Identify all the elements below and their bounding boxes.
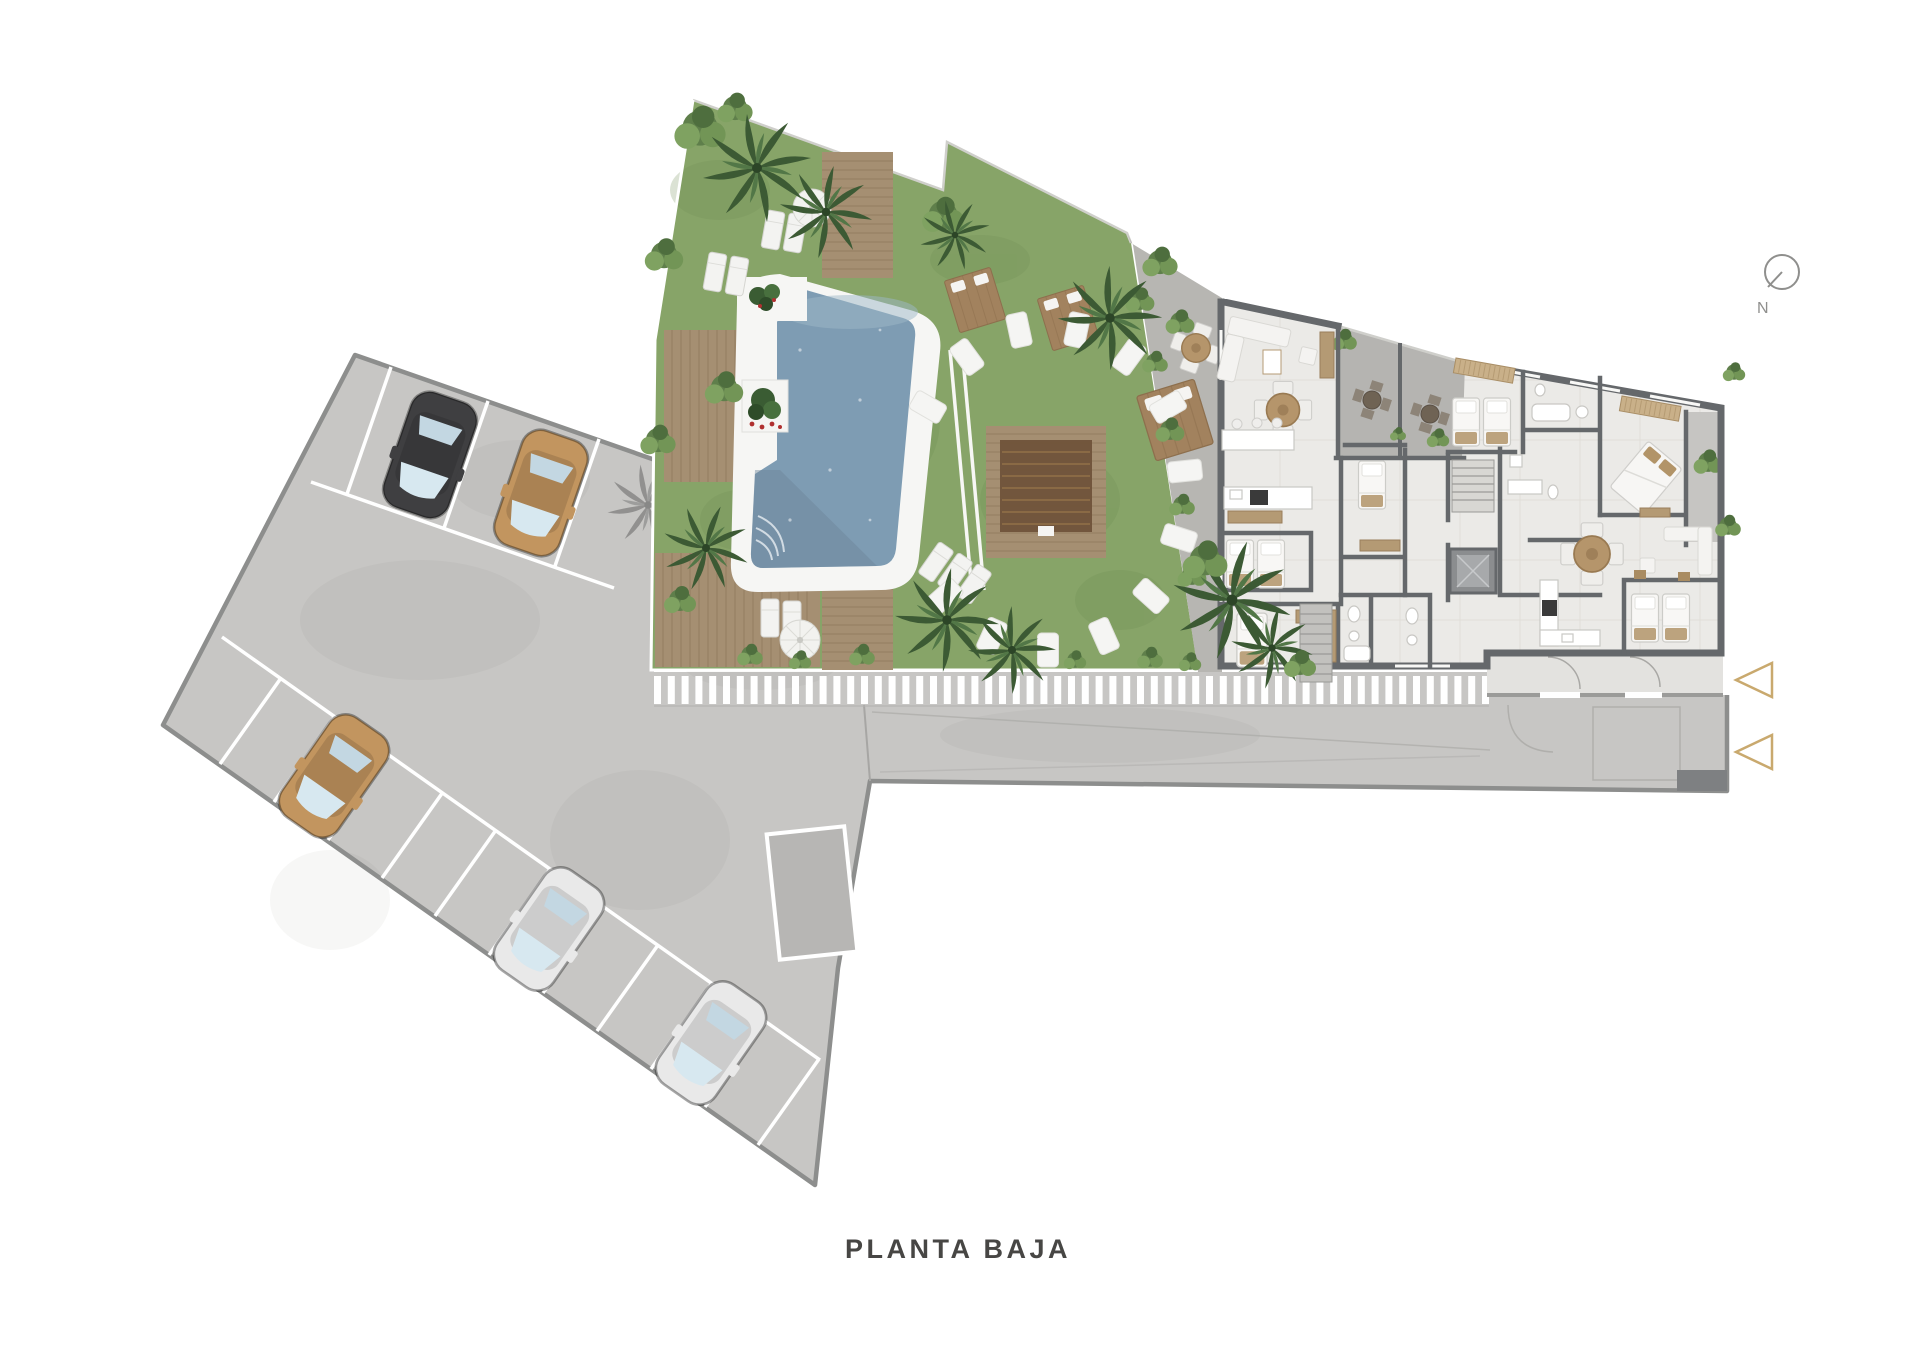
floor-plan-page: N PLANTA BAJA (0, 0, 1920, 1371)
toilet-4 (1548, 485, 1558, 499)
pool-planter (742, 380, 788, 432)
bed-6 (1484, 398, 1511, 446)
stove-right (1542, 600, 1557, 616)
pergola-roof (1000, 440, 1092, 532)
kitchen-sink (1230, 490, 1242, 499)
sink-3 (1576, 406, 1588, 418)
wardrobe-tall (1320, 332, 1334, 378)
bathtub-1 (1532, 404, 1570, 421)
toilet-3 (1535, 384, 1545, 396)
chair-brown-2 (1678, 572, 1690, 581)
street-corner-block (1677, 770, 1727, 791)
compass-label: N (1757, 300, 1769, 317)
compass-needle (1768, 272, 1782, 287)
entrance-arrow-2 (1736, 735, 1772, 769)
bed-4 (1359, 461, 1386, 509)
stair-core (1452, 460, 1494, 512)
kitchen-island (1222, 430, 1294, 450)
site-plan-svg: N PLANTA BAJA (0, 0, 1920, 1371)
sink-right (1562, 634, 1573, 642)
shower-1 (1344, 646, 1370, 661)
entrance-arrows (1736, 663, 1772, 769)
bedroom-bench (1360, 540, 1400, 551)
bed-8 (1663, 594, 1690, 642)
elevator (1450, 549, 1496, 593)
entrance-arrow-1 (1736, 663, 1772, 697)
armchair (1298, 346, 1317, 365)
chair-brown-1 (1634, 570, 1646, 579)
compass: N (1757, 255, 1799, 317)
bed-bench (1640, 508, 1670, 517)
bed-5 (1453, 398, 1480, 446)
tv-cabinet (1263, 350, 1281, 374)
side-balcony (1686, 412, 1721, 542)
sink-2 (1407, 635, 1417, 645)
washer (1510, 455, 1522, 467)
entrance-porch (1487, 653, 1723, 695)
toilet-1 (1348, 606, 1360, 622)
swimming-pool (731, 274, 941, 592)
marked-parking-space (767, 826, 858, 959)
sink-1 (1349, 631, 1359, 641)
pergola-step (1038, 526, 1054, 536)
toilet-2 (1406, 608, 1418, 624)
building (1217, 302, 1723, 695)
bath-counter (1508, 480, 1542, 494)
page-title: PLANTA BAJA (845, 1234, 1071, 1264)
sideboard (1228, 511, 1282, 523)
bed-7 (1632, 594, 1659, 642)
cooktop (1250, 490, 1268, 505)
